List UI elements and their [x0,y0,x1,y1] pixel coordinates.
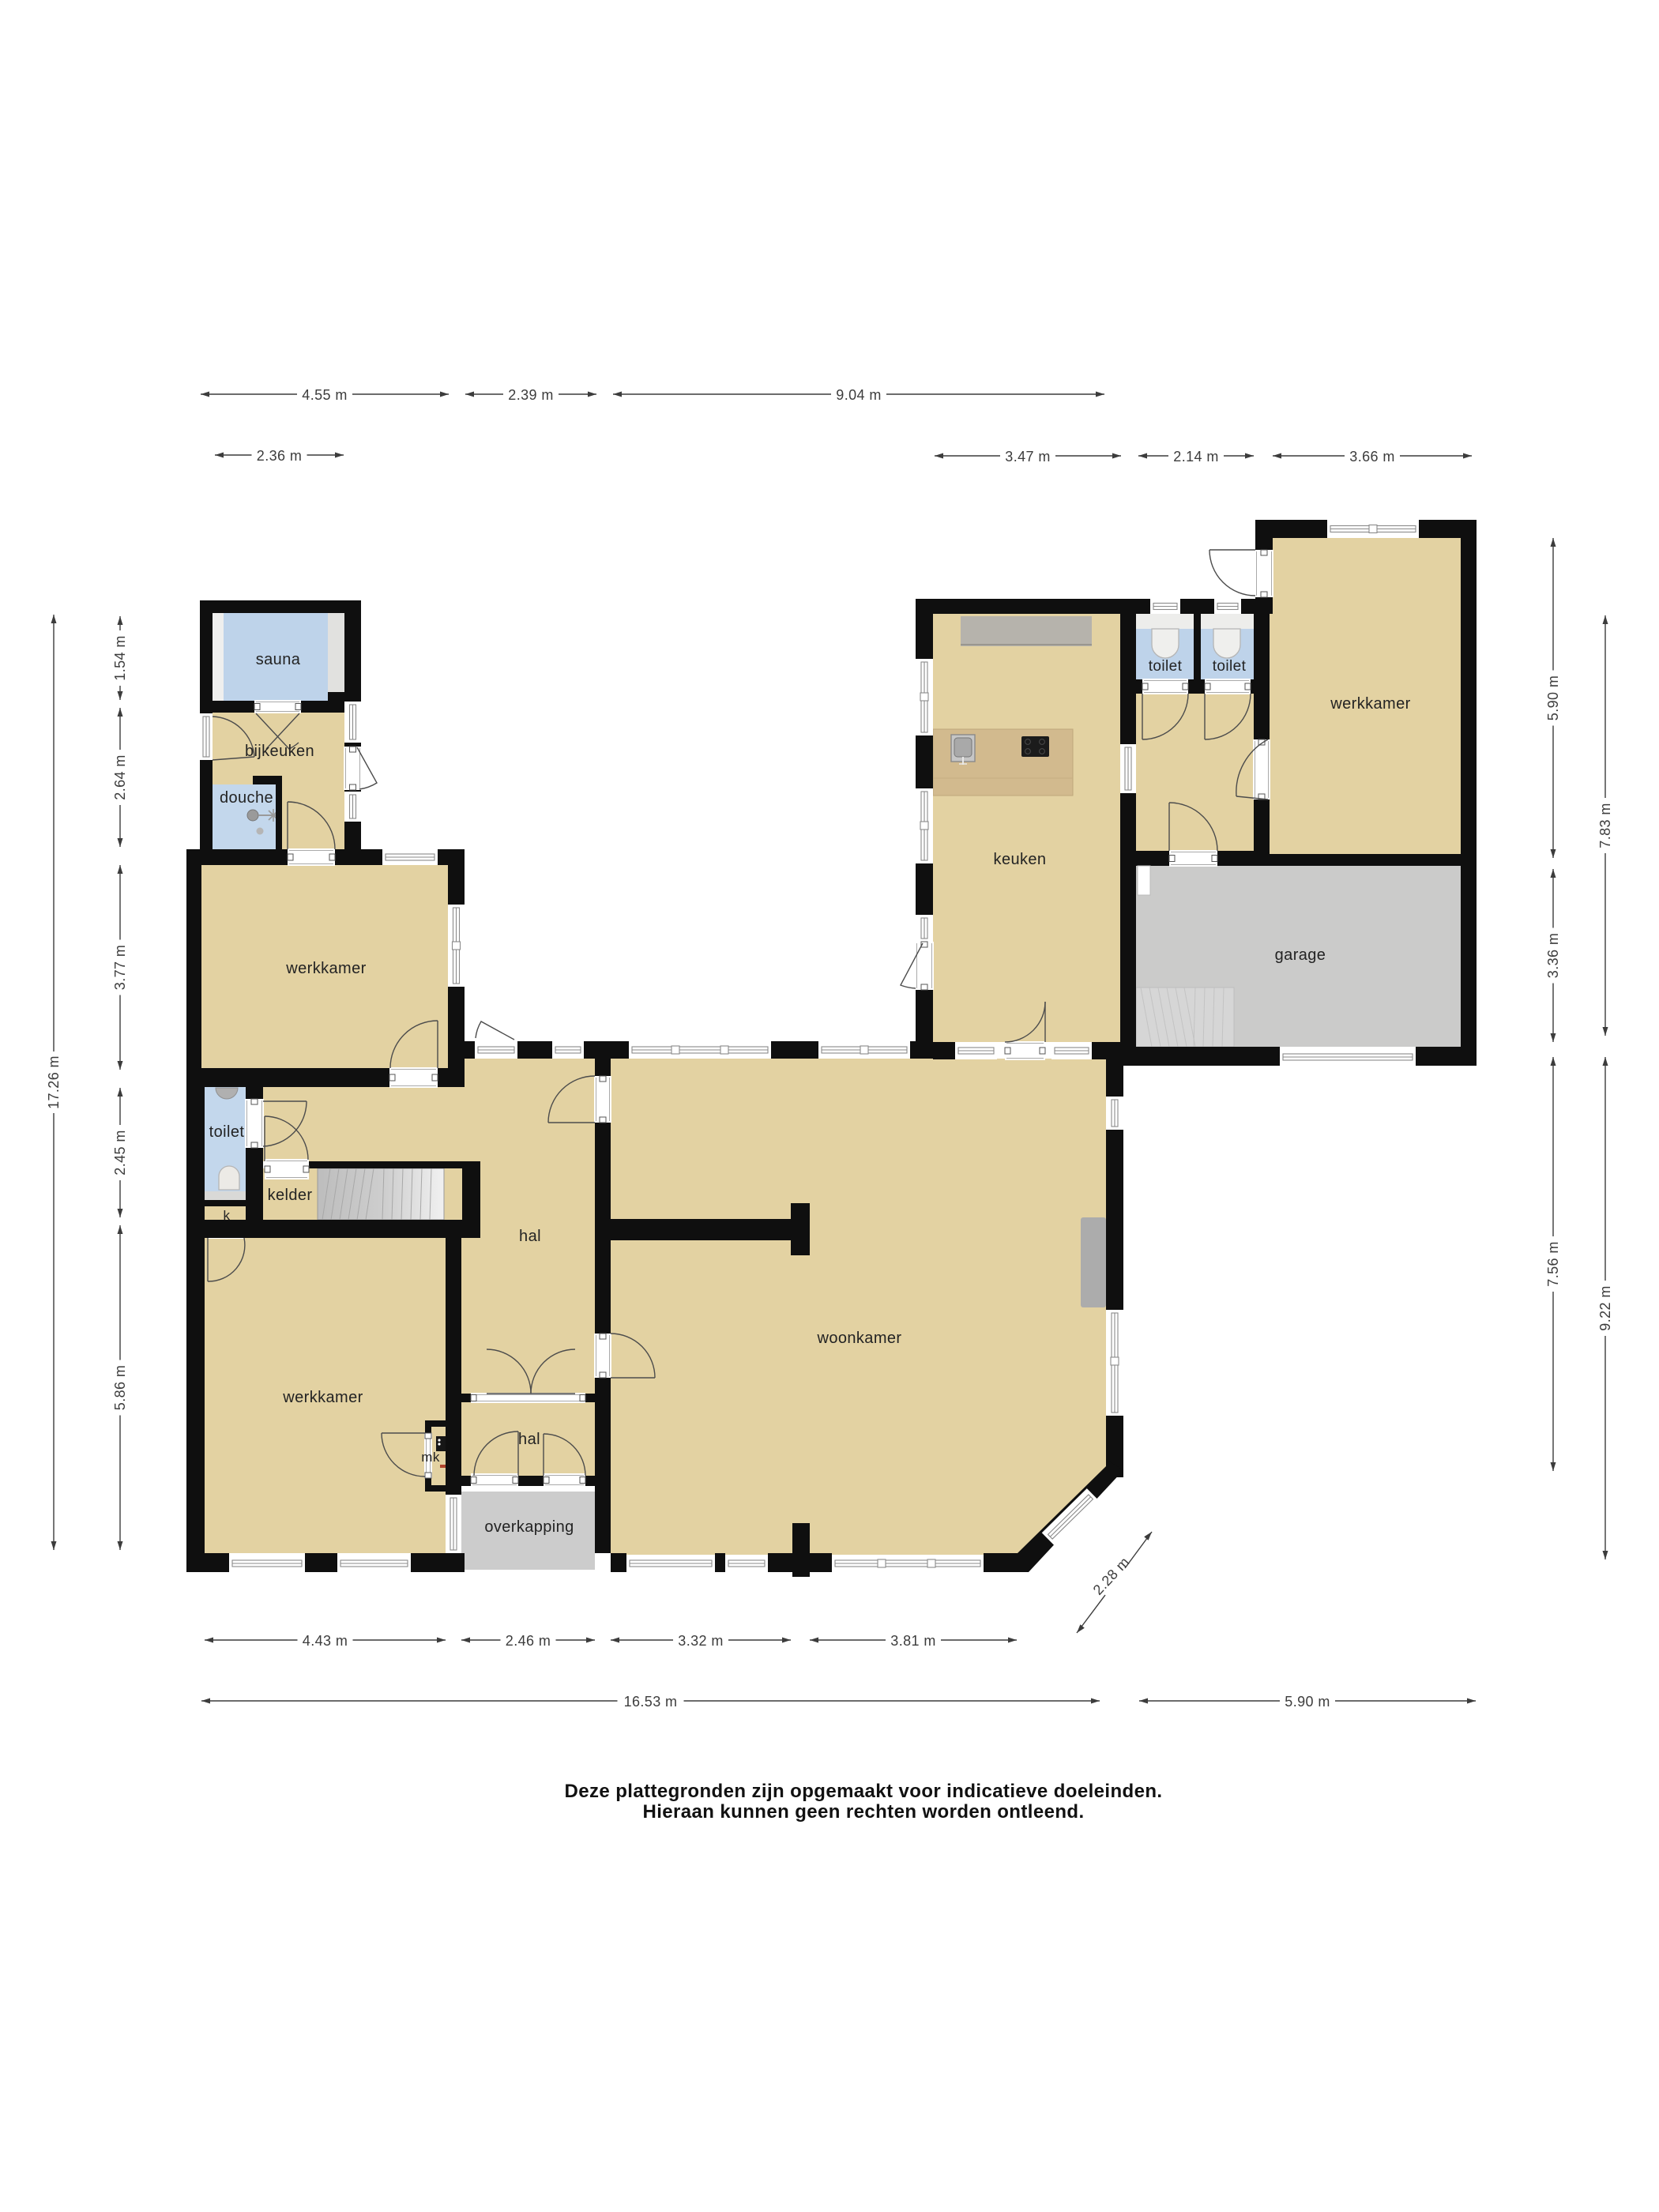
svg-text:3.36 m: 3.36 m [1545,933,1561,978]
svg-text:werkkamer: werkkamer [1330,695,1410,713]
svg-text:5.90 m: 5.90 m [1545,675,1561,720]
svg-text:9.22 m: 9.22 m [1597,1285,1613,1330]
svg-text:mk: mk [421,1450,440,1465]
svg-text:kelder: kelder [268,1187,313,1204]
svg-text:bijkeuken: bijkeuken [245,743,314,760]
svg-text:1.54 m: 1.54 m [112,635,128,680]
svg-text:woonkamer: woonkamer [817,1330,902,1347]
svg-text:hal: hal [518,1431,540,1448]
svg-text:toilet: toilet [1149,658,1183,675]
svg-text:sauna: sauna [256,651,301,668]
svg-text:2.36 m: 2.36 m [257,448,302,464]
svg-text:16.53 m: 16.53 m [624,1694,678,1710]
svg-text:3.32 m: 3.32 m [678,1633,723,1649]
svg-text:2.45 m: 2.45 m [112,1130,128,1175]
svg-text:2.64 m: 2.64 m [112,754,128,799]
svg-text:werkkamer: werkkamer [282,1389,363,1406]
svg-text:3.77 m: 3.77 m [112,945,128,990]
svg-text:17.26 m: 17.26 m [46,1055,62,1109]
svg-text:3.66 m: 3.66 m [1349,449,1394,465]
svg-text:werkkamer: werkkamer [285,960,366,977]
svg-text:hal: hal [519,1228,541,1245]
svg-text:garage: garage [1275,946,1326,964]
svg-text:4.55 m: 4.55 m [302,387,347,403]
svg-text:keuken: keuken [994,851,1047,868]
svg-text:3.81 m: 3.81 m [890,1633,935,1649]
svg-text:7.56 m: 7.56 m [1545,1241,1561,1286]
svg-text:overkapping: overkapping [484,1518,574,1536]
svg-text:Deze plattegronden zijn opgema: Deze plattegronden zijn opgemaakt voor i… [565,1781,1163,1802]
svg-text:Hieraan kunnen geen rechten wo: Hieraan kunnen geen rechten worden ontle… [642,1801,1084,1823]
svg-text:toilet: toilet [1213,658,1247,675]
svg-text:douche: douche [220,789,273,807]
svg-text:7.83 m: 7.83 m [1597,803,1613,848]
svg-text:2.46 m: 2.46 m [506,1633,551,1649]
svg-text:4.43 m: 4.43 m [303,1633,348,1649]
svg-text:5.90 m: 5.90 m [1285,1694,1330,1710]
svg-text:5.86 m: 5.86 m [112,1365,128,1410]
svg-text:2.14 m: 2.14 m [1173,449,1218,465]
svg-text:9.04 m: 9.04 m [836,387,881,403]
svg-text:2.39 m: 2.39 m [508,387,553,403]
svg-text:toilet: toilet [209,1123,245,1141]
svg-text:3.47 m: 3.47 m [1005,449,1050,465]
svg-text:k: k [224,1208,231,1223]
